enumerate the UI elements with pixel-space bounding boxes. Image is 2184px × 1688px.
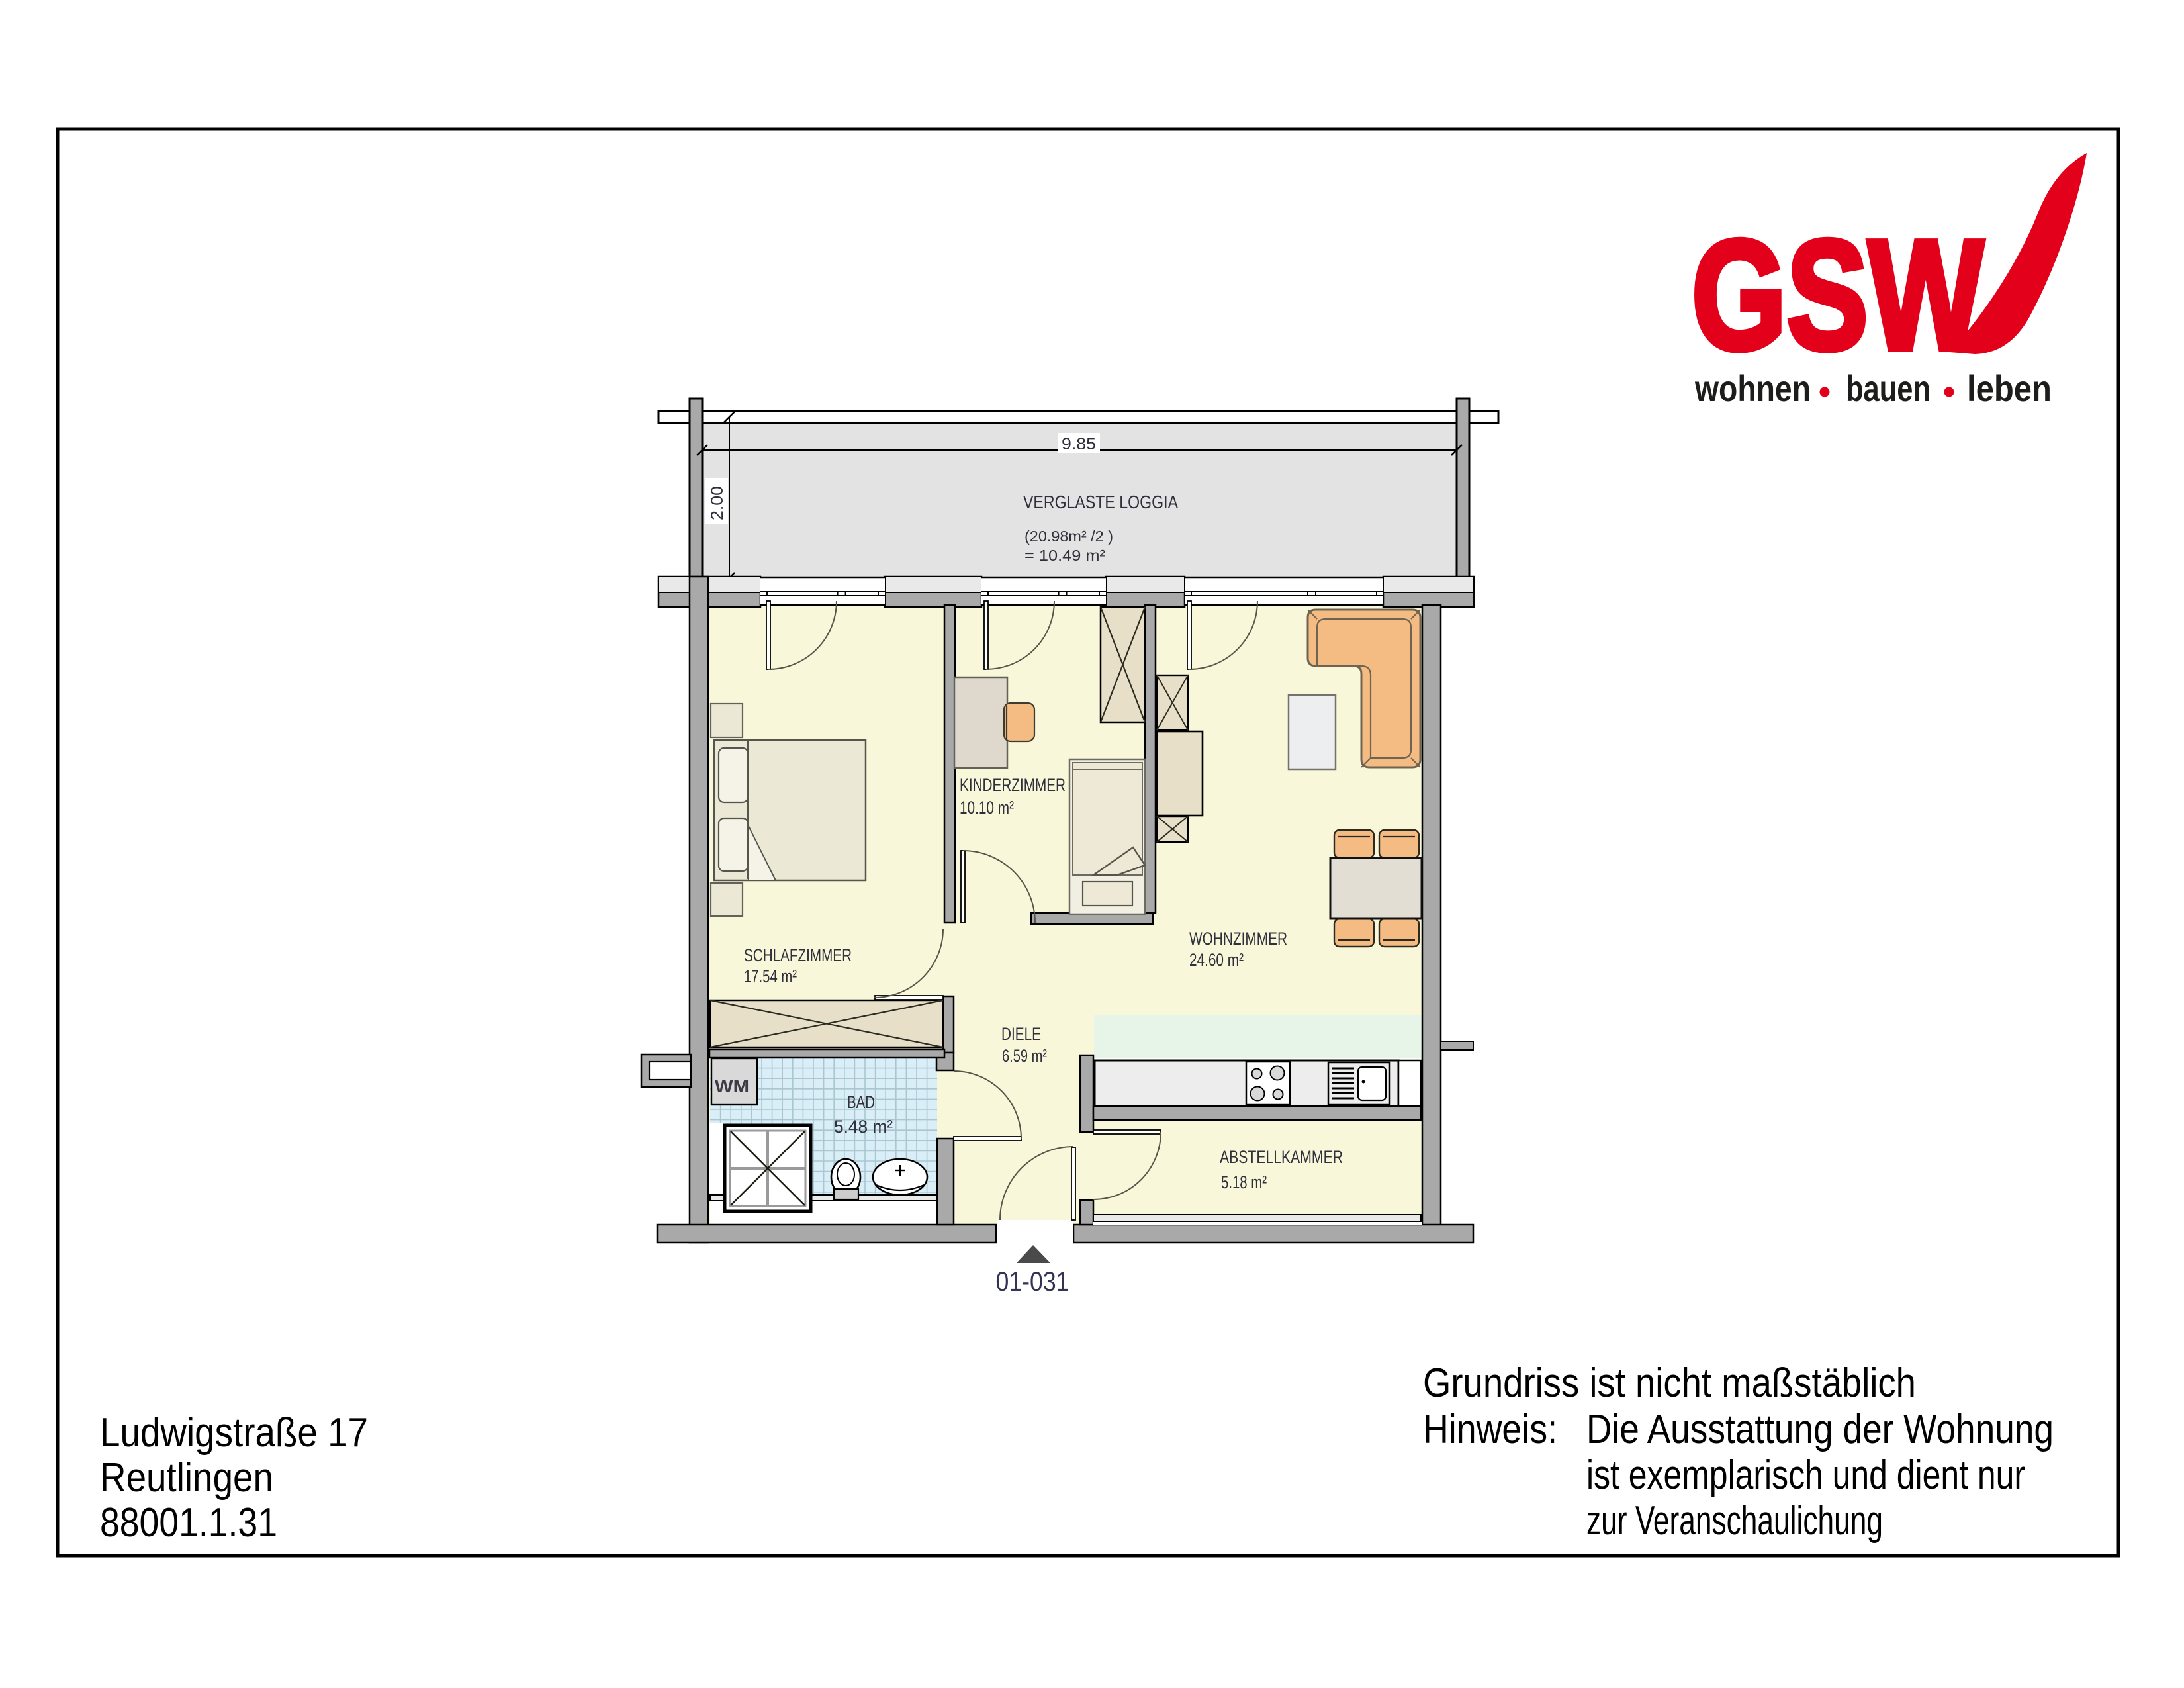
svg-text:VERGLASTE LOGGIA: VERGLASTE LOGGIA — [1023, 492, 1178, 512]
svg-text:Hinweis:: Hinweis: — [1423, 1407, 1557, 1452]
svg-text:Die Ausstattung der Wohnung: Die Ausstattung der Wohnung — [1586, 1407, 2054, 1452]
svg-text:2.00: 2.00 — [708, 486, 727, 520]
svg-text:= 10.49 m²: = 10.49 m² — [1024, 547, 1105, 564]
svg-text:5.48 m²: 5.48 m² — [834, 1117, 893, 1137]
svg-text:DIELE: DIELE — [1001, 1024, 1041, 1044]
svg-text:ABSTELLKAMMER: ABSTELLKAMMER — [1220, 1147, 1343, 1167]
svg-text:(20.98m² /2 ): (20.98m² /2 ) — [1024, 528, 1113, 545]
svg-text:zur Veranschaulichung: zur Veranschaulichung — [1586, 1498, 1883, 1544]
svg-text:9.85: 9.85 — [1062, 435, 1096, 453]
svg-text:leben: leben — [1967, 367, 2052, 409]
svg-text:5.18 m²: 5.18 m² — [1221, 1172, 1267, 1192]
svg-text:10.10 m²: 10.10 m² — [960, 798, 1014, 818]
svg-text:6.59 m²: 6.59 m² — [1002, 1046, 1047, 1066]
svg-text:SCHLAFZIMMER: SCHLAFZIMMER — [744, 945, 852, 965]
svg-text:WM: WM — [715, 1076, 749, 1096]
svg-text:Reutlingen: Reutlingen — [100, 1455, 273, 1501]
svg-text:BAD: BAD — [847, 1092, 875, 1112]
svg-text:WOHNZIMMER: WOHNZIMMER — [1189, 929, 1287, 949]
svg-text:24.60 m²: 24.60 m² — [1189, 950, 1244, 970]
svg-text:17.54 m²: 17.54 m² — [744, 966, 797, 986]
svg-text:KINDERZIMMER: KINDERZIMMER — [960, 775, 1066, 795]
svg-text:wohnen: wohnen — [1694, 367, 1811, 409]
svg-text:88001.1.31: 88001.1.31 — [100, 1500, 277, 1546]
svg-text:ist exemplarisch und dient nur: ist exemplarisch und dient nur — [1586, 1452, 2025, 1498]
svg-text:bauen: bauen — [1846, 367, 1931, 409]
svg-text:Ludwigstraße 17: Ludwigstraße 17 — [100, 1410, 368, 1456]
svg-text:01-031: 01-031 — [996, 1266, 1069, 1297]
svg-text:GSW: GSW — [1692, 208, 1983, 383]
svg-text:Grundriss ist nicht maßstäblic: Grundriss ist nicht maßstäblich — [1423, 1360, 1916, 1406]
